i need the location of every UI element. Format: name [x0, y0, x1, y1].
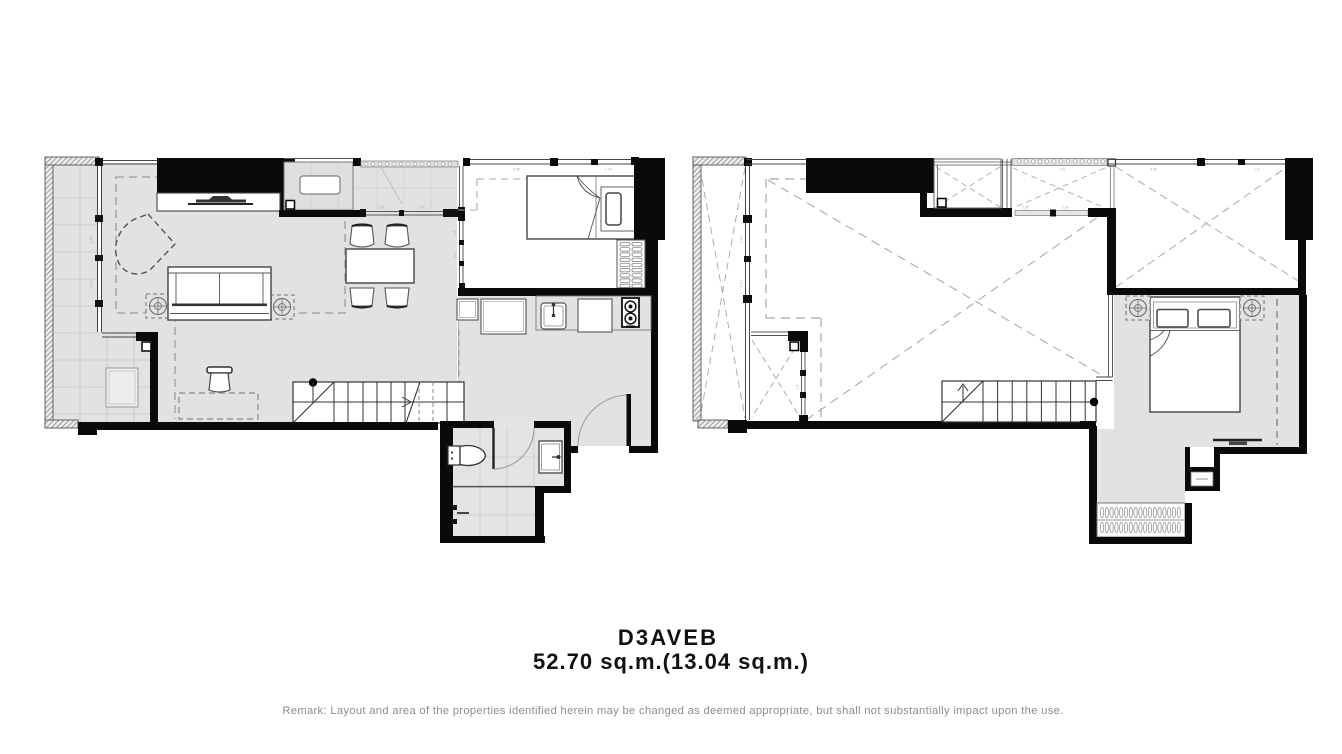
- svg-text:Remark: Layout and area of the: Remark: Layout and area of the propertie…: [282, 705, 1063, 717]
- svg-text:2.90: 2.90: [740, 236, 744, 243]
- svg-text:1.20: 1.20: [605, 168, 612, 172]
- svg-text:2.05: 2.05: [378, 206, 385, 210]
- svg-text:1.00: 1.00: [418, 206, 425, 210]
- svg-text:52.70 sq.m.(13.04 sq.m.): 52.70 sq.m.(13.04 sq.m.): [533, 649, 809, 674]
- svg-text:1.4: 1.4: [796, 385, 800, 390]
- svg-text:2.90: 2.90: [90, 236, 94, 243]
- svg-text:2.05: 2.05: [1022, 206, 1029, 210]
- svg-text:1.1: 1.1: [453, 253, 457, 258]
- svg-text:1.2: 1.2: [1255, 168, 1260, 172]
- svg-text:3.30: 3.30: [1150, 168, 1157, 172]
- svg-text:2.55: 2.55: [513, 168, 520, 172]
- svg-text:2.5: 2.5: [1060, 168, 1065, 172]
- svg-text:2.10: 2.10: [740, 280, 744, 287]
- svg-text:1.4: 1.4: [453, 231, 457, 236]
- svg-text:2.10: 2.10: [90, 280, 94, 287]
- svg-text:D3AVEB: D3AVEB: [618, 625, 718, 650]
- svg-text:1.00: 1.00: [1062, 206, 1069, 210]
